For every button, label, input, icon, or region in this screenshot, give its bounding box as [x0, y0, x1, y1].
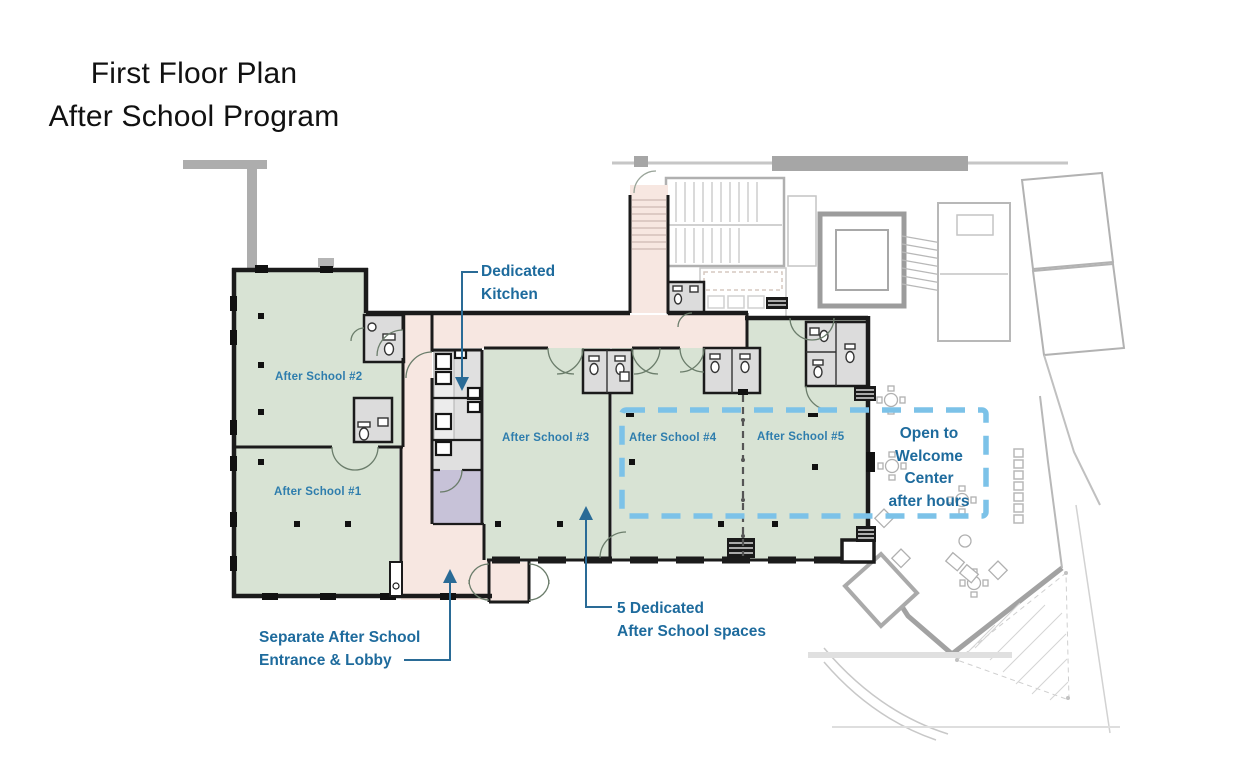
annotation-entrance-line1: Separate After School — [259, 626, 420, 649]
annotation-spaces-line1: 5 Dedicated — [617, 597, 766, 620]
annotation-welcome-line3: Center — [870, 468, 988, 491]
chair-row — [1014, 449, 1023, 523]
stairwell — [666, 178, 784, 266]
elevator — [820, 214, 904, 306]
annotation-kitchen-line2: Kitchen — [481, 283, 555, 306]
slide-title-line2: After School Program — [28, 95, 360, 138]
annotation-welcome-line2: Welcome — [870, 446, 988, 469]
annotation-kitchen-line1: Dedicated — [481, 260, 555, 283]
annotation-entrance-line2: Entrance & Lobby — [259, 649, 420, 672]
room-label-after-school-3: After School #3 — [502, 432, 589, 444]
room-label-after-school-1: After School #1 — [274, 486, 361, 498]
slide-title: First Floor Plan After School Program — [28, 52, 360, 138]
slide-title-line1: First Floor Plan — [28, 52, 360, 95]
annotation-spaces-line2: After School spaces — [617, 620, 766, 643]
room-label-after-school-5: After School #5 — [757, 431, 844, 443]
annotation-welcome-line4: after hours — [870, 491, 988, 514]
annotation-open-to-welcome-center: Open to Welcome Center after hours — [870, 423, 988, 513]
annotation-5-dedicated-spaces: 5 Dedicated After School spaces — [617, 597, 766, 643]
room-label-after-school-4: After School #4 — [629, 432, 716, 444]
annotation-dedicated-kitchen: Dedicated Kitchen — [481, 260, 555, 306]
room1-fill — [234, 447, 399, 596]
room-label-after-school-2: After School #2 — [275, 371, 362, 383]
floor-plan-slide: First Floor Plan After School Program Af… — [0, 0, 1248, 762]
annotation-welcome-line1: Open to — [870, 423, 988, 446]
annotation-separate-entrance: Separate After School Entrance & Lobby — [259, 626, 420, 672]
support-room-fill — [433, 470, 482, 524]
